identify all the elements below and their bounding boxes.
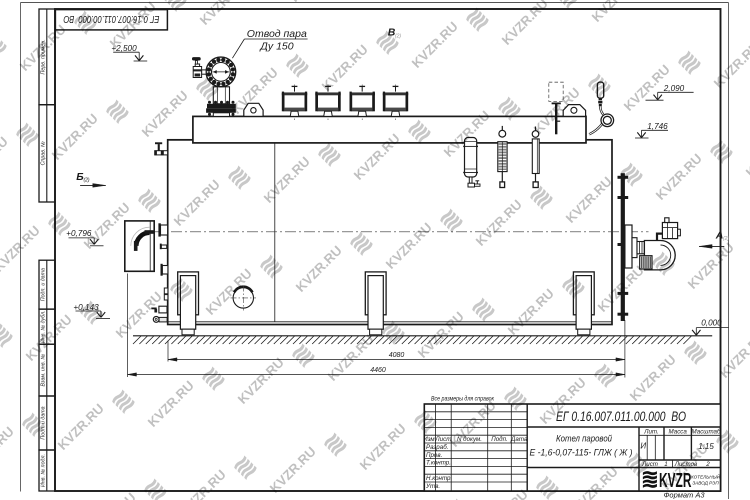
svg-text:Т.контр.: Т.контр. [426,460,451,467]
svg-text:Справ. №: Справ. № [41,141,47,165]
svg-text:2: 2 [705,461,710,468]
svg-text:Масса: Масса [669,428,688,435]
svg-text:Инв. № подл.: Инв. № подл. [41,454,47,487]
svg-text:Изм.: Изм. [423,436,436,443]
svg-text:Подп. и дата: Подп. и дата [41,406,47,439]
svg-text:ЕГ 0.16.007.011.00.000 ВО: ЕГ 0.16.007.011.00.000 ВО [556,409,686,424]
svg-text:(2): (2) [83,178,89,184]
svg-text:0,000: 0,000 [701,319,722,328]
svg-text:Котел паровой: Котел паровой [556,434,613,445]
svg-text:И: И [640,442,646,451]
svg-text:Н.контр.: Н.контр. [426,475,452,482]
svg-text:Подп.: Подп. [491,436,507,443]
svg-text:2,090: 2,090 [663,84,685,93]
svg-text:1,746: 1,746 [647,122,668,131]
svg-text:Е -1,6-0,07-115- ГЛЖ ( Ж ): Е -1,6-0,07-115- ГЛЖ ( Ж ) [530,448,633,459]
svg-text:4460: 4460 [370,367,386,374]
svg-text:Подп. и дата: Подп. и дата [41,268,47,301]
svg-text:Разраб.: Разраб. [426,444,448,451]
svg-text:Лит.: Лит. [643,428,659,435]
svg-text:Утв.: Утв. [425,483,440,490]
svg-text:ЗАВОД РЭП: ЗАВОД РЭП [692,481,719,486]
svg-text:(2): (2) [395,34,401,40]
svg-text:4080: 4080 [389,352,405,359]
svg-text:КОТЕЛЬНЫЙ: КОТЕЛЬНЫЙ [691,473,721,480]
svg-text:Взам. инв. №: Взам. инв. № [41,353,47,386]
svg-text:Масштаб: Масштаб [692,428,721,435]
svg-text:Пров.: Пров. [426,452,442,459]
svg-text:Отвод пара: Отвод пара [247,28,307,40]
svg-text:Дата: Дата [510,436,528,443]
svg-text:1: 1 [664,461,667,468]
svg-text:Ду 150: Ду 150 [259,41,293,53]
